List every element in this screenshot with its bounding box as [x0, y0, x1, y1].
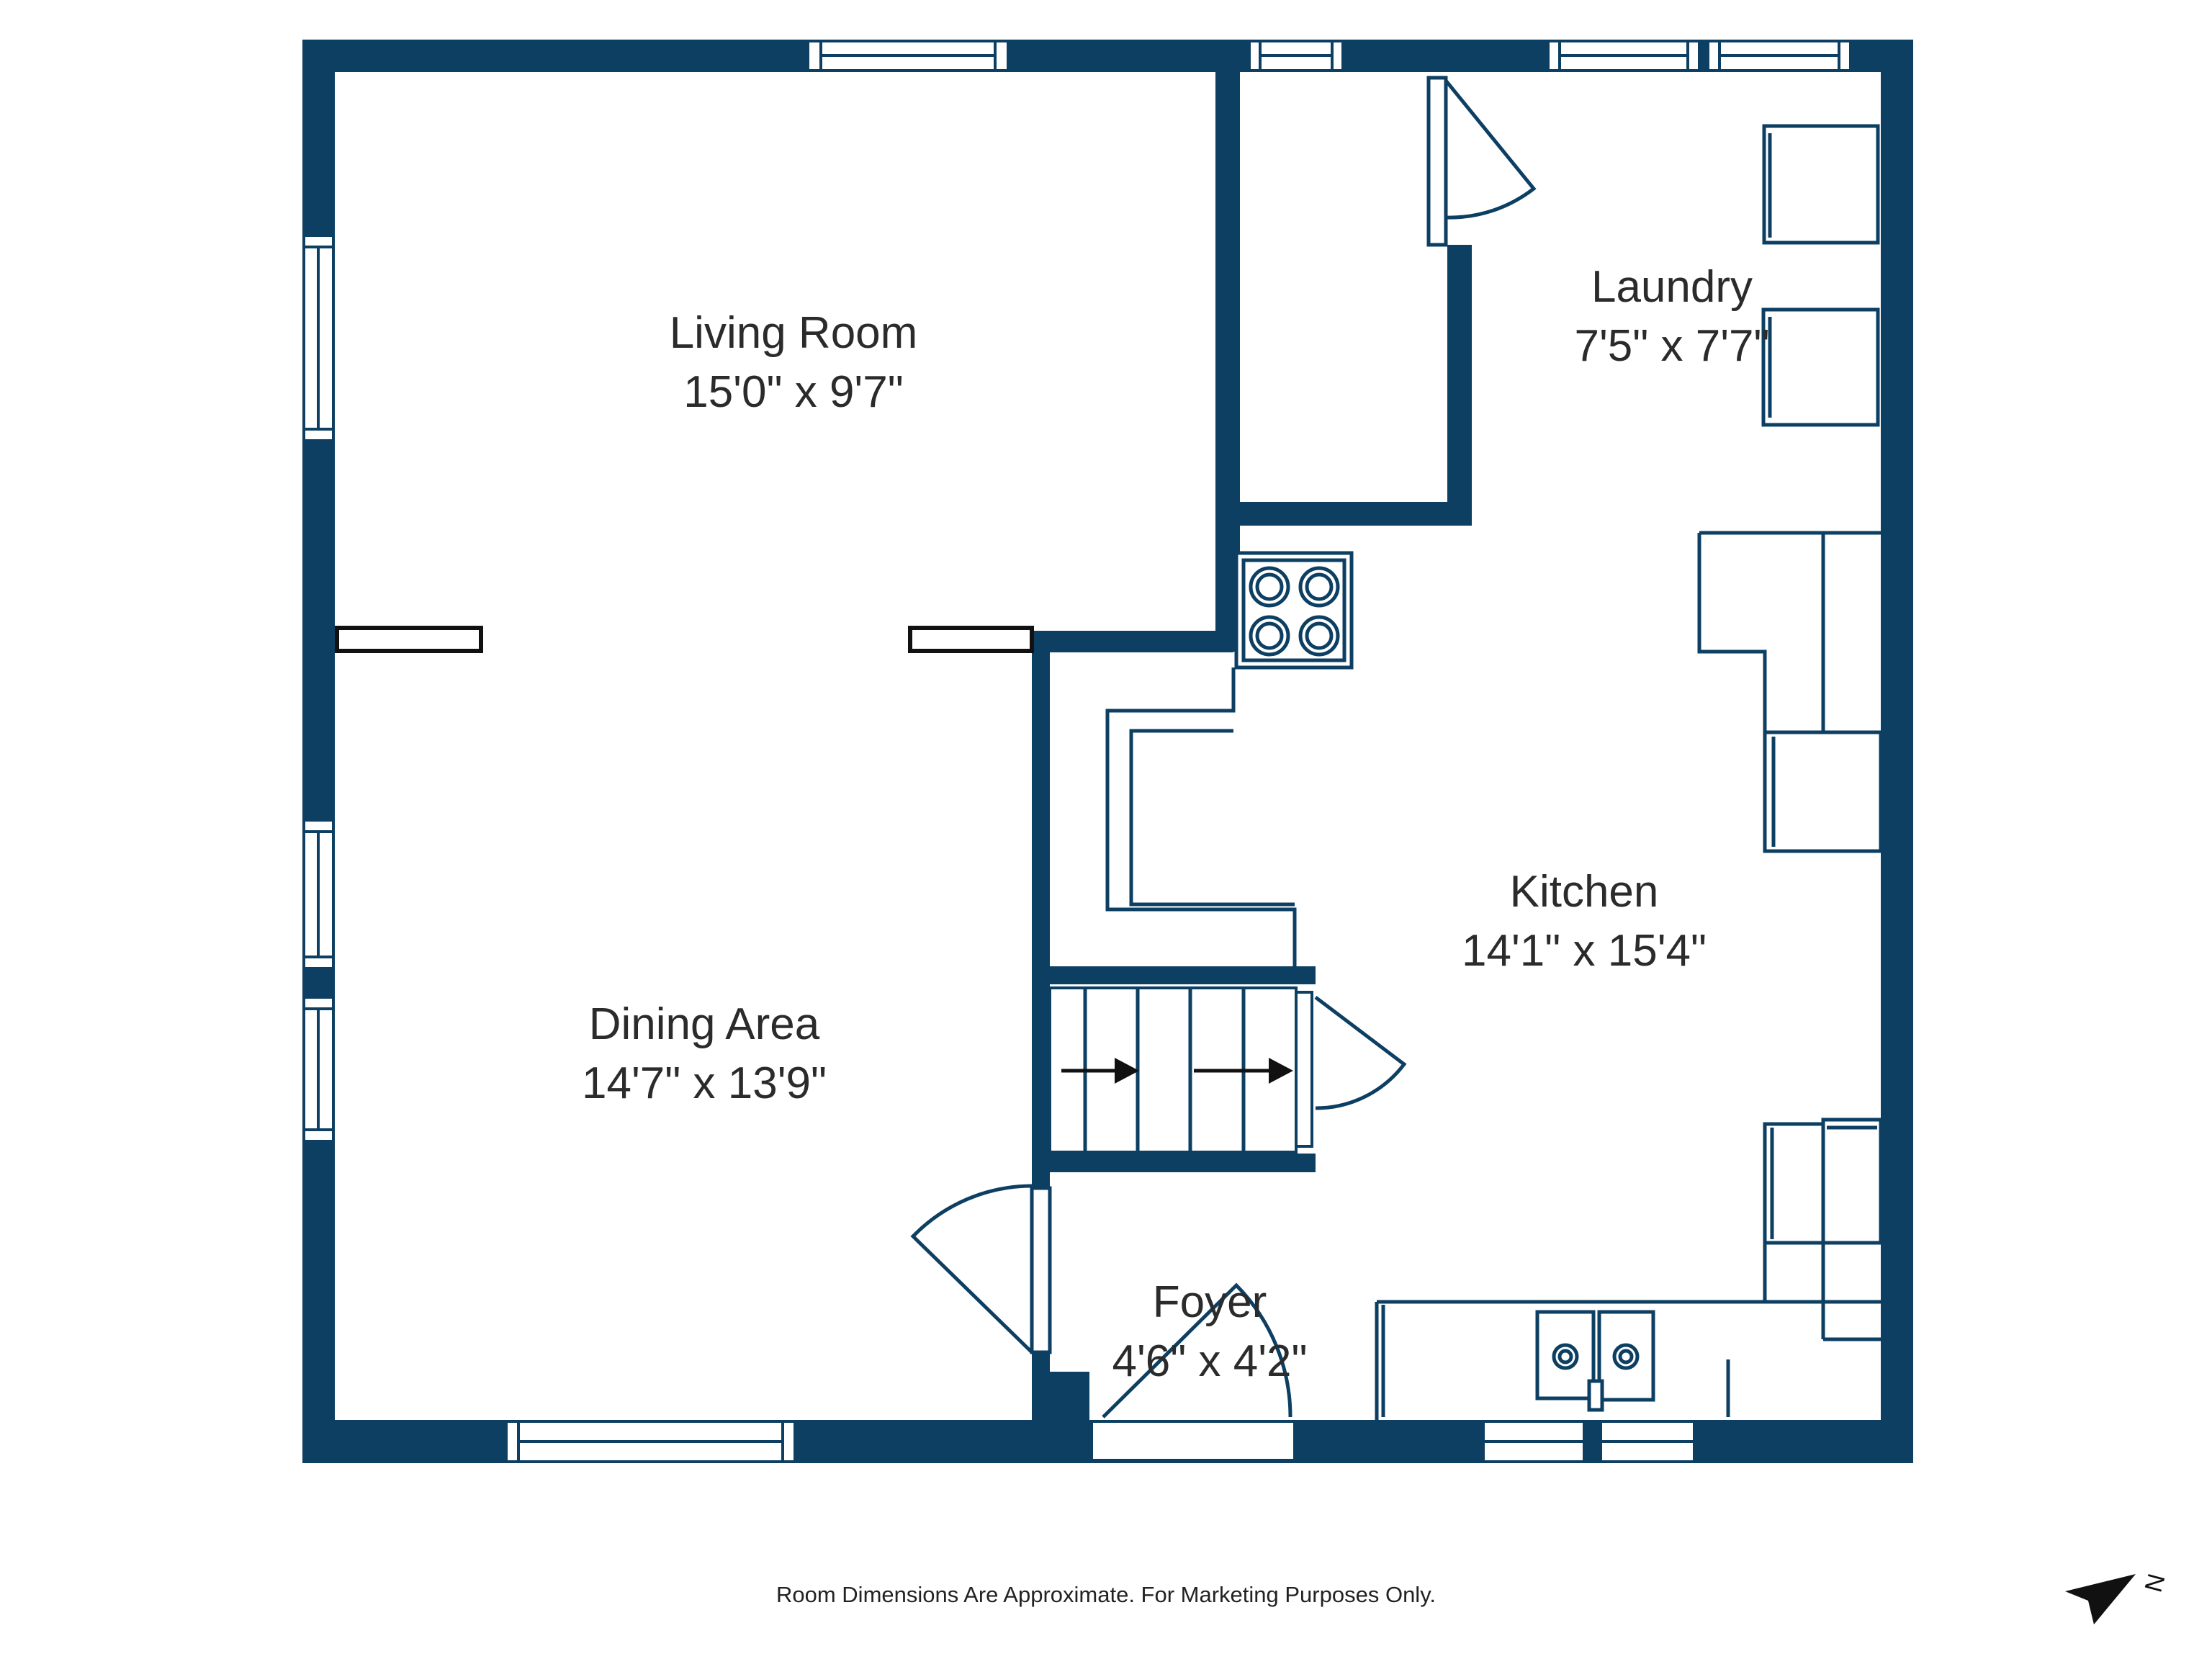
window-kitchen-bottom-1 — [1483, 1421, 1584, 1462]
wall-closet-laundry — [1447, 245, 1472, 526]
kitchen-peninsula-counter — [1107, 667, 1295, 967]
kitchen-dims: 14'1" x 15'4" — [1462, 922, 1707, 981]
foyer-dining-door — [913, 1186, 1050, 1352]
floor-plan-drawing: N — [0, 0, 2212, 1659]
opening-bar-right — [910, 628, 1032, 651]
laundry-door — [1429, 78, 1534, 245]
window-dining-bottom — [506, 1421, 795, 1462]
dryer-icon — [1763, 310, 1878, 425]
stove-icon — [1236, 553, 1352, 667]
opening-bar-left — [337, 628, 481, 651]
laundry-dims: 7'5" x 7'7" — [1574, 317, 1769, 376]
dining-area-name: Dining Area — [589, 999, 820, 1049]
disclaimer-text: Room Dimensions Are Approximate. For Mar… — [776, 1582, 1436, 1608]
kitchen-counter-upper-right — [1699, 533, 1881, 851]
window-living-top — [808, 41, 1008, 71]
compass: N — [2065, 1570, 2170, 1624]
foyer-dims: 4'6" x 4'2" — [1112, 1332, 1307, 1391]
kitchen-label: Kitchen 14'1" x 15'4" — [1462, 863, 1707, 981]
window-dining-left-1 — [304, 820, 333, 968]
living-room-name: Living Room — [670, 308, 918, 358]
laundry-appliances — [1763, 126, 1878, 425]
window-closet-top — [1249, 41, 1343, 71]
window-dining-left-2 — [304, 997, 333, 1141]
wall-foyer-corner-block — [1050, 1372, 1089, 1420]
wall-right — [1881, 40, 1913, 1463]
wall-stairs-top — [1050, 966, 1316, 984]
foyer-label: Foyer 4'6" x 4'2" — [1112, 1273, 1307, 1391]
dining-area-label: Dining Area 14'7" x 13'9" — [582, 995, 827, 1113]
wall-stairs-bottom — [1032, 1154, 1316, 1172]
kitchen-counter-lower-right — [1765, 1120, 1881, 1339]
laundry-name: Laundry — [1591, 262, 1753, 312]
window-laundry-top-2 — [1708, 41, 1851, 71]
kitchen-name: Kitchen — [1510, 867, 1659, 917]
entry-threshold — [1092, 1421, 1295, 1460]
window-laundry-top-1 — [1548, 41, 1699, 71]
dining-area-dims: 14'7" x 13'9" — [582, 1054, 827, 1113]
faucet-icon — [1589, 1381, 1602, 1410]
laundry-label: Laundry 7'5" x 7'7" — [1574, 258, 1769, 376]
stairs — [1050, 988, 1296, 1152]
fridge-icon — [1765, 732, 1881, 851]
sink-icon — [1537, 1312, 1653, 1410]
wall-openings — [337, 628, 1032, 651]
windows — [304, 41, 1851, 1462]
window-kitchen-bottom-2 — [1601, 1421, 1694, 1462]
window-living-left — [304, 235, 333, 441]
wall-closet-bottom — [1215, 502, 1472, 526]
wall-foyer-stub — [1032, 1352, 1050, 1424]
stairs-door — [1296, 992, 1404, 1146]
washer-icon — [1764, 126, 1878, 243]
compass-north-icon — [2065, 1574, 2136, 1624]
floor-plan-page: N Living Room 15'0" x 9'7" Laundry 7'5" … — [0, 0, 2212, 1659]
foyer-name: Foyer — [1153, 1277, 1267, 1327]
wall-living-dining-divider — [1032, 631, 1233, 652]
living-room-label: Living Room 15'0" x 9'7" — [670, 304, 918, 422]
living-room-dims: 15'0" x 9'7" — [670, 363, 918, 422]
wall-dining-foyer — [1032, 631, 1050, 1188]
compass-north-label: N — [2139, 1570, 2170, 1595]
